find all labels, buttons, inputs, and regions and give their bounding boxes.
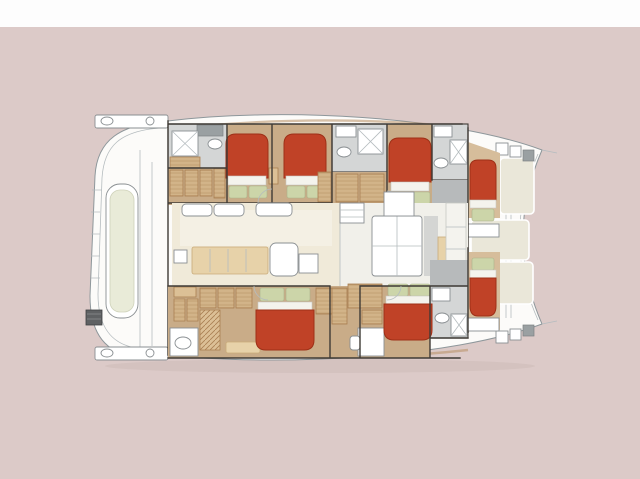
fridge — [384, 192, 414, 216]
bed-spread — [470, 278, 496, 316]
deck-hatch — [510, 329, 521, 340]
wardrobe — [174, 299, 185, 321]
nightstand — [269, 168, 278, 184]
wardrobe — [218, 288, 234, 308]
wardrobe — [200, 288, 216, 308]
wardrobe — [336, 174, 358, 202]
davit-fitting — [146, 117, 154, 125]
dining-table — [192, 247, 268, 274]
windlass — [523, 325, 534, 336]
bed-linen — [228, 176, 266, 185]
pillow — [286, 288, 310, 301]
port-walkway — [432, 180, 468, 205]
bed-spread — [226, 134, 268, 178]
bed-linen — [391, 182, 429, 191]
foredeck-panel — [500, 158, 534, 214]
sink — [434, 126, 452, 137]
hull-shadow — [105, 359, 535, 373]
cleat — [101, 349, 113, 357]
wardrobe — [318, 172, 331, 202]
single-berth-port-bow — [467, 160, 499, 237]
staircase — [200, 310, 220, 350]
aft-bench-cushion — [110, 190, 134, 312]
sofa-cushion — [214, 204, 244, 216]
sofa-cushion — [182, 204, 212, 216]
boarding-ladder-box — [86, 310, 102, 325]
bed-spread — [389, 138, 431, 182]
sink — [336, 126, 356, 137]
toilet — [337, 147, 351, 157]
pillow — [229, 186, 247, 198]
pillow — [249, 186, 267, 198]
wardrobe — [214, 168, 225, 198]
cleat — [101, 117, 113, 125]
wardrobe — [236, 288, 252, 308]
shelf-unit — [348, 284, 382, 308]
bed-spread — [470, 160, 496, 200]
wardrobe — [360, 174, 384, 202]
shelf — [174, 287, 196, 297]
double-berth-starboard-fore — [384, 284, 432, 340]
wardrobe — [200, 170, 212, 196]
deck-hatch — [496, 331, 508, 343]
wardrobe — [185, 170, 198, 196]
toilet — [434, 158, 448, 168]
bed-linen — [470, 270, 496, 278]
deck-hatch — [510, 146, 521, 157]
bed-spread — [284, 134, 326, 178]
foredeck-panel — [497, 262, 533, 304]
deck-plan-diagram: Catamaran yacht interior deck plan, top … — [0, 0, 640, 479]
pillow — [472, 258, 494, 270]
desk-chair — [350, 336, 360, 350]
side-table — [174, 250, 187, 263]
wardrobe — [187, 299, 198, 321]
wardrobe — [170, 157, 200, 168]
toilet — [208, 139, 222, 149]
cabin-sofa — [226, 342, 260, 353]
sink — [432, 288, 450, 301]
companionway-steps — [340, 203, 364, 223]
pillow — [412, 192, 430, 204]
page: Catamaran yacht interior deck plan, top … — [0, 0, 640, 479]
salon — [172, 192, 468, 289]
starboard-walkway — [430, 260, 468, 286]
bow-cabin-counter — [467, 224, 499, 237]
bed-spread — [256, 310, 314, 350]
double-berth-port-aft — [226, 134, 268, 198]
windlass — [523, 150, 534, 161]
sofa-cushion — [256, 203, 292, 216]
top-white-band — [0, 0, 640, 27]
wardrobe — [362, 310, 382, 324]
vanity-desk — [358, 328, 384, 356]
wardrobe — [170, 170, 183, 196]
davit-fitting — [146, 349, 154, 357]
salon-seat — [299, 254, 318, 273]
vanity-counter — [197, 125, 223, 136]
bed-linen — [386, 296, 430, 304]
bow-cabin-counter — [467, 318, 499, 331]
bed-linen — [470, 200, 496, 208]
pillow — [472, 209, 494, 221]
bed-linen — [258, 302, 312, 310]
bed-spread — [384, 304, 432, 340]
drawer-unit — [332, 288, 347, 324]
toilet — [175, 337, 191, 349]
salon-bench — [270, 243, 298, 276]
toilet — [435, 313, 449, 323]
pillow — [287, 186, 305, 198]
